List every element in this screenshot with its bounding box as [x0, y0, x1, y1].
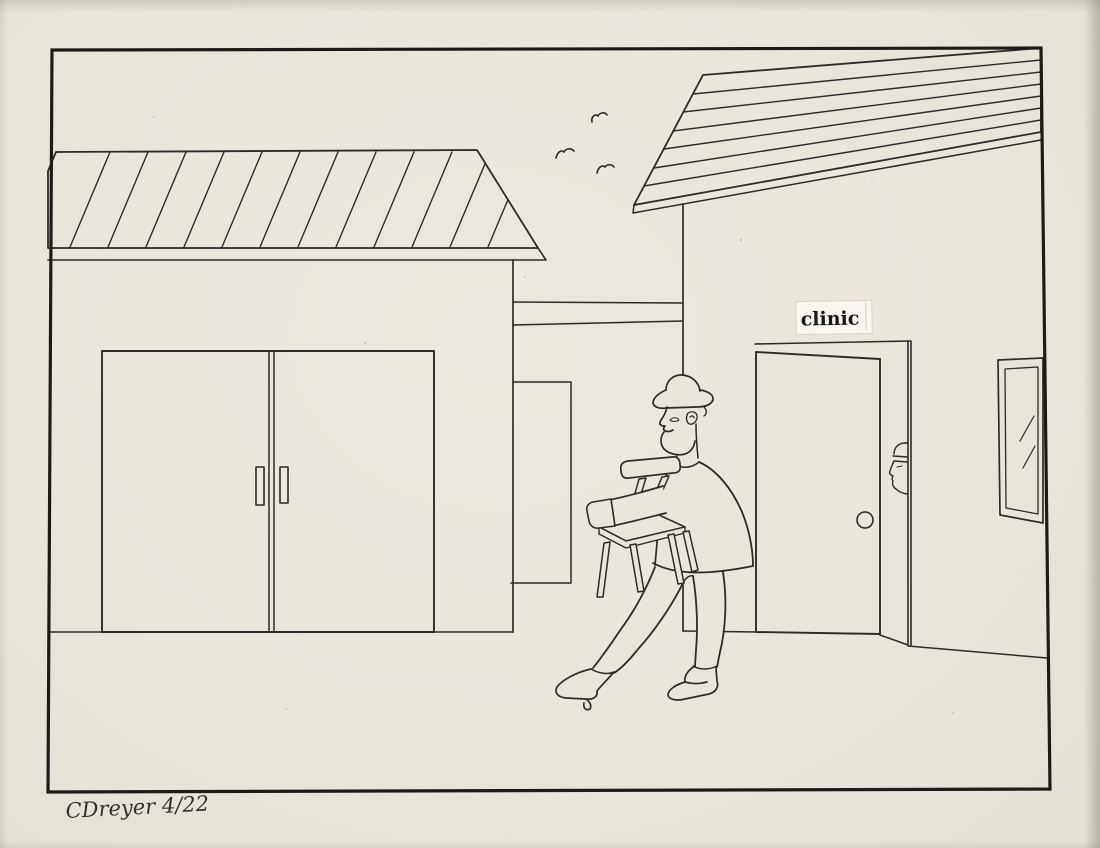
doorway-lintel — [755, 341, 910, 344]
bird-icon — [597, 165, 614, 173]
paper-edge-shadow-left — [0, 0, 8, 848]
clinic-sign: clinic — [796, 300, 873, 334]
connecting-wall — [513, 302, 683, 325]
window-reflection — [1020, 416, 1035, 468]
double-doors — [102, 351, 434, 632]
bird-icon — [592, 113, 607, 122]
sleeve-cuff — [587, 499, 615, 528]
bird-icon — [556, 149, 574, 158]
chair-leg — [630, 544, 644, 592]
paper-edge-shadow-top — [0, 0, 1100, 12]
striped-slanted-roof — [48, 150, 546, 260]
door-handle-right — [280, 467, 288, 503]
right-building-base — [683, 631, 1047, 658]
window — [998, 358, 1043, 523]
drawing-frame-border — [48, 48, 1050, 792]
background-doorway — [511, 382, 571, 583]
roof-fascia — [633, 140, 1041, 213]
peeking-person-eye — [897, 466, 902, 467]
peeking-person-cap — [893, 443, 908, 462]
artist-signature: CDreyer 4/22 — [65, 792, 210, 823]
left-building — [48, 150, 546, 632]
peeking-person-face — [890, 461, 908, 494]
roof-fascia — [48, 248, 546, 260]
open-door — [756, 352, 880, 634]
paper-edge-shadow-bottom — [0, 840, 1100, 848]
cartoon-line-art: clinic — [0, 0, 1100, 848]
clinic-sign-text: clinic — [801, 308, 860, 331]
paper-edge-shadow-right — [1084, 0, 1100, 848]
chair-leg — [597, 542, 610, 597]
plank-roof — [633, 48, 1041, 213]
flying-birds — [556, 113, 614, 173]
man-carrying-chair — [556, 375, 753, 710]
photographed-cartoon-drawing: clinic — [0, 0, 1100, 848]
peeking-person — [890, 443, 908, 494]
door-handle-left — [256, 467, 264, 505]
